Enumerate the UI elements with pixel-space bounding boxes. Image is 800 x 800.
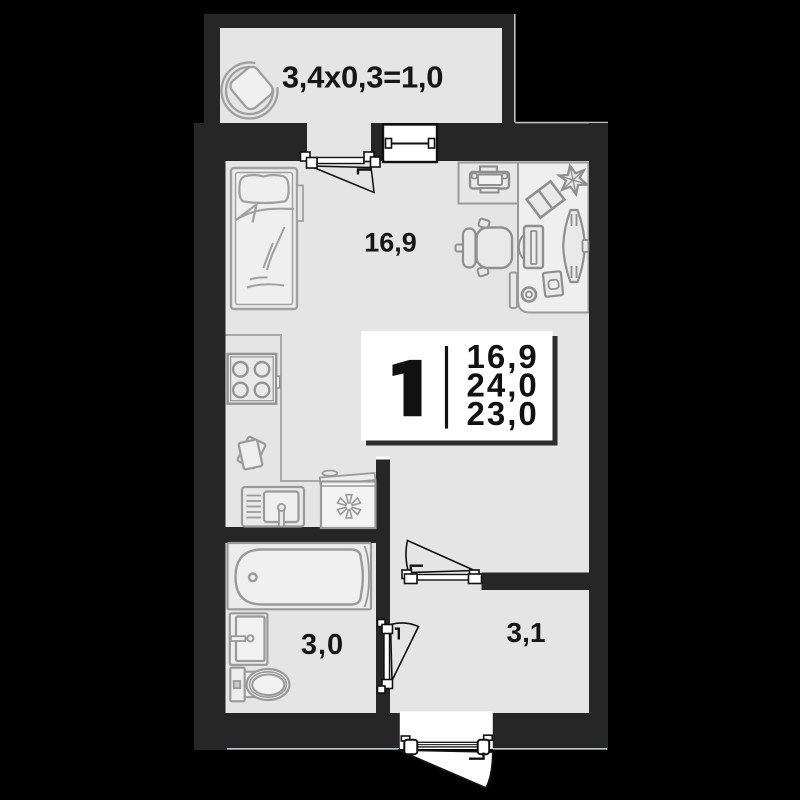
svg-text:23,0: 23,0 bbox=[467, 395, 539, 432]
svg-text:16,9: 16,9 bbox=[364, 228, 417, 258]
svg-text:3,4x0,3=1,0: 3,4x0,3=1,0 bbox=[282, 60, 443, 95]
svg-text:3,1: 3,1 bbox=[507, 617, 546, 648]
svg-text:3,0: 3,0 bbox=[301, 629, 344, 661]
